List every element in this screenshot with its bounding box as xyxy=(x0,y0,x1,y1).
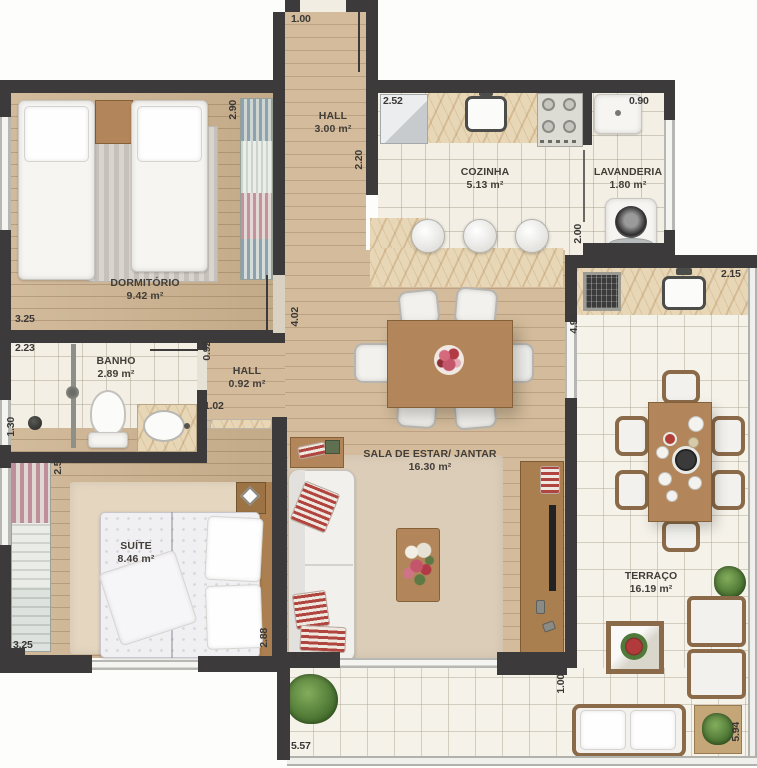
book-stack xyxy=(540,466,560,494)
door-opening-dormitorio xyxy=(273,275,285,333)
window xyxy=(0,468,11,545)
pillow xyxy=(24,106,89,162)
centerpiece-flowers-icon xyxy=(434,345,464,375)
room-name: BANHO xyxy=(76,355,156,368)
terrace-chair xyxy=(662,520,700,552)
serving-platter xyxy=(672,446,700,474)
room-area: 5.13 m² xyxy=(440,179,530,192)
terrace-armchair xyxy=(687,649,746,699)
room-area: 1.80 m² xyxy=(585,179,671,192)
terrace-chair xyxy=(662,370,700,404)
sofa-cushion-seam xyxy=(305,564,353,566)
washer-drum-icon xyxy=(615,206,647,238)
room-label-hall: HALL 3.00 m² xyxy=(295,110,371,136)
plate-icon xyxy=(688,416,704,432)
toilet-bowl xyxy=(90,390,126,436)
headboard-panel xyxy=(95,100,133,144)
terrace-chair xyxy=(711,470,745,510)
room-area: 8.46 m² xyxy=(96,553,176,566)
dimension-label: 2.15 xyxy=(721,268,741,280)
striped-pillow xyxy=(292,590,331,630)
terrace-sink xyxy=(662,276,706,310)
terrace-armchair xyxy=(687,596,746,647)
plate-icon xyxy=(658,472,672,486)
dimension-label: 2.88 xyxy=(258,628,270,648)
bathroom-bin xyxy=(28,416,42,430)
terrace-chair xyxy=(615,470,649,510)
faucet-icon xyxy=(615,110,621,116)
sliding-door-sala xyxy=(340,658,497,668)
room-area: 9.42 m² xyxy=(80,290,210,303)
room-label-suite: SUÍTE 8.46 m² xyxy=(96,540,176,566)
dimension-label: 5.57 xyxy=(291,740,311,752)
stove-knobs xyxy=(540,140,580,143)
peninsula-counter xyxy=(370,248,563,287)
window xyxy=(0,117,11,230)
wall xyxy=(346,0,366,12)
striped-pillow xyxy=(299,625,346,653)
grill xyxy=(583,272,621,311)
toilet-tank xyxy=(88,432,128,448)
wall xyxy=(272,417,287,662)
terrace-chair xyxy=(711,416,745,456)
flower-bouquet-icon xyxy=(400,542,436,588)
pillow xyxy=(204,516,263,583)
dimension-label: 3.30 xyxy=(291,650,311,662)
room-label-banho: BANHO 2.89 m² xyxy=(76,355,156,381)
dimension-label: 3.25 xyxy=(15,313,35,325)
remote-control-icon xyxy=(536,600,545,614)
wall xyxy=(366,0,378,195)
burner-icon xyxy=(542,120,555,133)
room-area: 16.19 m² xyxy=(606,583,696,596)
room-area: 2.89 m² xyxy=(76,368,156,381)
dimension-label: 1.00 xyxy=(291,13,311,25)
wall xyxy=(583,93,592,145)
terrace-railing xyxy=(748,268,757,760)
burner-icon xyxy=(563,98,576,111)
room-name: LAVANDERIA xyxy=(585,166,671,179)
room-label-hall-pequeno: HALL 0.92 m² xyxy=(211,365,283,391)
wall xyxy=(0,80,285,93)
wardrobe-shelf-clothes xyxy=(241,99,272,141)
plate-icon xyxy=(666,490,678,502)
room-area: 16.30 m² xyxy=(348,461,512,474)
entry-door-opening xyxy=(300,0,346,12)
wardrobe-shelves xyxy=(12,523,50,587)
room-label-cozinha: COZINHA 5.13 m² xyxy=(440,166,530,192)
door-leaf xyxy=(150,349,198,351)
room-label-sala: SALA DE ESTAR/ JANTAR 16.30 m² xyxy=(348,448,512,474)
wall xyxy=(497,652,567,675)
room-label-dormitorio: DORMITÓRIO 9.42 m² xyxy=(80,277,210,303)
door-leaf xyxy=(266,275,268,333)
room-name: SALA DE ESTAR/ JANTAR xyxy=(348,448,512,461)
dimension-label: 5.94 xyxy=(730,722,742,742)
room-name: TERRAÇO xyxy=(606,570,696,583)
sliding-door-suite xyxy=(92,660,198,670)
pillow xyxy=(205,584,263,650)
shower-head-icon xyxy=(66,386,79,399)
bar-stool xyxy=(515,219,549,253)
dimension-label: 2.90 xyxy=(227,100,239,120)
wardrobe-hanging-clothes xyxy=(241,141,272,193)
kitchen-sink xyxy=(465,96,507,132)
room-name: HALL xyxy=(211,365,283,378)
room-label-terraco: TERRAÇO 16.19 m² xyxy=(606,570,696,596)
wardrobe-hanging-clothes-pink xyxy=(12,457,50,523)
door-leaf xyxy=(358,12,360,72)
dimension-label: 2.20 xyxy=(353,150,365,170)
floor-plan: DORMITÓRIO 9.42 m² HALL 3.00 m² COZINHA … xyxy=(0,0,757,768)
dimension-label: 3.25 xyxy=(13,639,33,651)
dimension-label: 1.30 xyxy=(5,417,17,437)
dimension-label: 2.52 xyxy=(383,95,403,107)
vanity-sink xyxy=(143,410,185,442)
bar-stool xyxy=(411,219,445,253)
room-name: HALL xyxy=(295,110,371,123)
plate-icon xyxy=(688,476,702,490)
burner-icon xyxy=(563,120,576,133)
red-bowl xyxy=(663,432,677,446)
wall xyxy=(198,656,277,672)
room-label-lavanderia: LAVANDERIA 1.80 m² xyxy=(585,166,671,192)
room-area: 0.92 m² xyxy=(211,378,283,391)
room-name: COZINHA xyxy=(440,166,530,179)
wall xyxy=(366,80,675,93)
wardrobe-hanging-clothes-pink xyxy=(241,193,272,239)
wardrobe-shelf-clothes xyxy=(241,239,272,279)
decor-box xyxy=(325,440,340,454)
bowl-icon xyxy=(688,437,699,448)
terrace-railing xyxy=(287,756,757,766)
flower-centerpiece-icon xyxy=(620,633,648,660)
room-name: SUÍTE xyxy=(96,540,176,553)
dimension-label: 4.02 xyxy=(289,307,301,327)
faucet-icon xyxy=(184,423,190,429)
wall xyxy=(277,655,290,760)
wall xyxy=(0,655,92,673)
pillow xyxy=(137,106,202,162)
dimension-label: 1.00 xyxy=(555,674,567,694)
wall xyxy=(0,452,207,463)
sofa-cushion xyxy=(580,710,626,750)
suite-door-threshold xyxy=(210,419,272,429)
potted-plant xyxy=(714,566,746,598)
sofa-cushion xyxy=(630,710,676,750)
wall xyxy=(285,0,300,12)
plate-icon xyxy=(656,446,669,459)
dimension-label: 4.94 xyxy=(568,314,580,334)
terrace-chair xyxy=(615,416,649,456)
burner-icon xyxy=(542,98,555,111)
potted-plant xyxy=(286,674,338,724)
tv-icon xyxy=(549,505,556,591)
dimension-label: 0.90 xyxy=(629,95,649,107)
dimension-label: 2.00 xyxy=(572,224,584,244)
faucet-icon xyxy=(676,268,692,275)
room-name: DORMITÓRIO xyxy=(80,277,210,290)
dimension-label: 2.50 xyxy=(52,455,64,475)
wall xyxy=(565,255,757,268)
dimension-label: 1.02 xyxy=(204,400,224,412)
dimension-label: 2.23 xyxy=(15,342,35,354)
dimension-label: 0.92 xyxy=(201,341,213,361)
wall xyxy=(0,330,285,343)
bar-stool xyxy=(463,219,497,253)
room-area: 3.00 m² xyxy=(295,123,371,136)
